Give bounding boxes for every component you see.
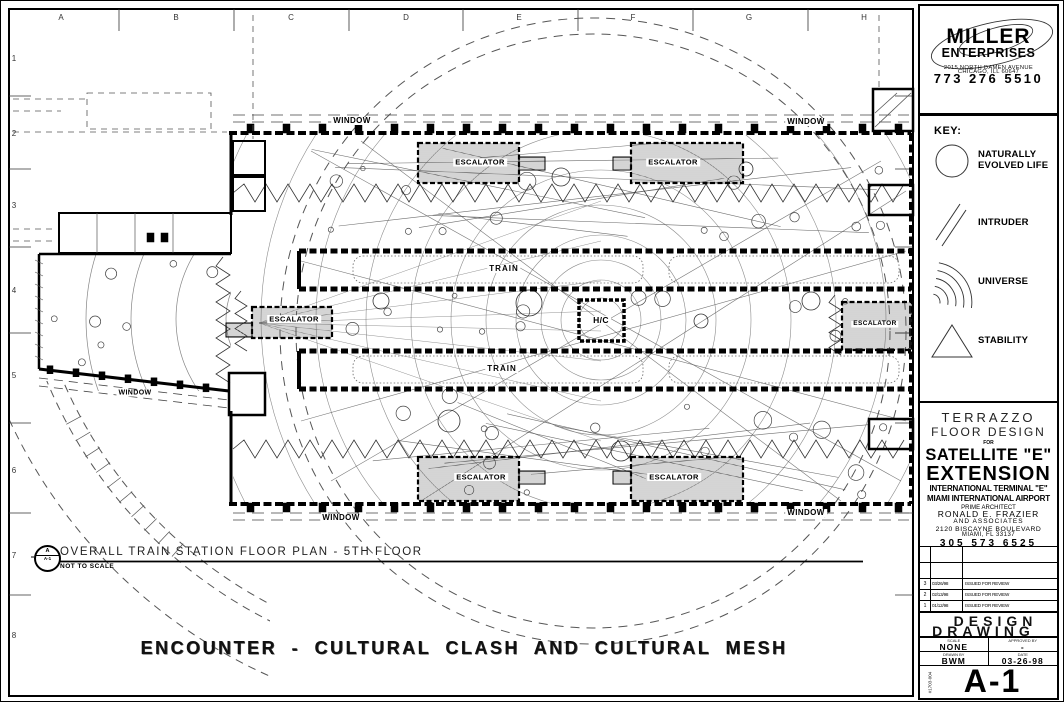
drawing-sheet: ABCDEFGH12345678 WINDOW WINDOW WINDOW WI…	[0, 0, 1064, 702]
escalator-label-east: ESCALATOR	[851, 321, 898, 328]
revision-date: 03/26/98	[931, 579, 963, 589]
revision-number: 3	[920, 579, 931, 589]
project-subtitle-line2: MIAMI INTERNATIONAL AIRPORT	[920, 494, 1057, 503]
hc-label: H/C	[591, 316, 611, 325]
company-phone: 773 276 5510	[920, 71, 1057, 86]
train-label-south: TRAIN	[485, 365, 518, 373]
key-title: KEY:	[934, 125, 961, 137]
grid-row-6: 6	[12, 467, 16, 475]
revision-description: ISSUED FOR REVIEW	[963, 579, 1057, 589]
key-item-label: INTRUDER	[978, 218, 1029, 229]
project-title-block: TERRAZZO FLOOR DESIGN FOR SATELLITE "E" …	[920, 401, 1057, 546]
diagonal-lines-icon	[926, 198, 978, 248]
triangle-icon	[926, 321, 978, 361]
project-title-line2: EXTENSION	[920, 464, 1057, 484]
architect-name: RONALD E. FRAZIER	[920, 511, 1057, 518]
drawing-type-line2: DRAWING	[920, 628, 1047, 636]
revision-date: 02/13/98	[931, 590, 963, 600]
bubble-detail-letter: A	[36, 547, 59, 556]
key-item-universe: UNIVERSE	[926, 256, 1055, 308]
floor-plan-drawing	[1, 1, 917, 702]
scale-value: NONE	[920, 643, 988, 652]
radiating-arcs-icon	[926, 256, 978, 308]
key-item-intruder: INTRUDER	[926, 198, 1055, 248]
sheet-number: A-1	[928, 665, 1057, 697]
train-label-north: TRAIN	[487, 265, 520, 273]
drawing-info-grid: SCALE NONE APPROVED BY - DRAWN BY BWM DA…	[920, 636, 1057, 664]
window-label-wing: WINDOW	[116, 390, 153, 397]
grid-column-E: E	[516, 14, 521, 22]
grid-row-8: 8	[12, 632, 16, 640]
circle-icon	[926, 141, 978, 181]
key-item-label: STABILITY	[978, 336, 1028, 347]
revision-number: 2	[920, 590, 931, 600]
revision-number: 1	[920, 601, 931, 611]
approved-value: -	[989, 643, 1058, 652]
concept-title: ENCOUNTER - CULTURAL CLASH AND CULTURAL …	[141, 638, 788, 659]
revision-row: 2 02/13/98 ISSUED FOR REVIEW	[920, 590, 1057, 601]
grid-column-H: H	[861, 14, 867, 22]
key-item-label: UNIVERSE	[978, 277, 1028, 288]
grid-column-D: D	[403, 14, 409, 22]
legend-key-block: KEY: NATURALLY EVOLVED LIFE INTRUDER	[920, 116, 1057, 401]
revision-description: ISSUED FOR REVIEW	[963, 590, 1057, 600]
window-label-top-left: WINDOW	[331, 117, 373, 125]
grid-row-2: 2	[12, 130, 16, 138]
plan-caption-title: OVERALL TRAIN STATION FLOOR PLAN - 5TH F…	[60, 546, 423, 558]
escalator-label-top-left: ESCALATOR	[453, 158, 507, 166]
escalator-label-bottom-right: ESCALATOR	[647, 473, 701, 481]
grid-row-7: 7	[12, 552, 16, 560]
project-subtitle-line1: INTERNATIONAL TERMINAL "E"	[920, 484, 1057, 493]
revision-row-empty	[920, 547, 1057, 563]
grid-row-1: 1	[12, 55, 16, 63]
window-label-top-right: WINDOW	[785, 118, 827, 126]
key-item-stability: STABILITY	[926, 321, 1055, 361]
architect-phone: 305 573 6525	[920, 538, 1057, 546]
company-name-line2: ENTERPRISES	[920, 47, 1057, 60]
title-block-panel: MILLER ENTERPRISES 2015 NORTH DAMEN AVEN…	[918, 4, 1059, 700]
revision-row-empty	[920, 563, 1057, 579]
grid-column-F: F	[631, 14, 636, 22]
escalator-label-west: ESCALATOR	[267, 315, 321, 323]
scale-cell: SCALE NONE	[920, 638, 989, 652]
grid-row-3: 3	[12, 202, 16, 210]
escalator-label-top-right: ESCALATOR	[646, 158, 700, 166]
drawing-type-block: DESIGN DRAWING	[920, 611, 1057, 636]
key-item-label: NATURALLY EVOLVED LIFE	[978, 150, 1055, 172]
window-label-bottom-left: WINDOW	[320, 514, 362, 522]
grid-column-G: G	[746, 14, 752, 22]
key-item-naturally-evolved-life: NATURALLY EVOLVED LIFE	[926, 141, 1055, 181]
project-subject-line1: TERRAZZO	[920, 410, 1057, 425]
grid-row-4: 4	[12, 287, 16, 295]
project-subject-line2: FLOOR DESIGN	[920, 425, 1057, 439]
approved-cell: APPROVED BY -	[989, 638, 1058, 652]
revision-row: 3 03/26/98 ISSUED FOR REVIEW	[920, 579, 1057, 590]
revision-table: 3 03/26/98 ISSUED FOR REVIEW 2 02/13/98 …	[920, 546, 1057, 611]
sheet-number-block: #1703-004 A-1	[920, 664, 1057, 699]
project-title-line1: SATELLITE "E"	[920, 447, 1057, 464]
company-name-line1: MILLER	[920, 28, 1057, 47]
job-number: #1703-004	[927, 672, 932, 694]
company-logo-block: MILLER ENTERPRISES 2015 NORTH DAMEN AVEN…	[920, 6, 1057, 116]
revision-date: 01/12/98	[931, 601, 963, 611]
grid-column-B: B	[173, 14, 178, 22]
grid-row-5: 5	[12, 372, 16, 380]
revision-description: ISSUED FOR REVIEW	[963, 601, 1057, 611]
detail-reference-bubble: A A-1	[34, 545, 61, 572]
grid-column-C: C	[288, 14, 294, 22]
grid-column-A: A	[58, 14, 63, 22]
bubble-sheet-ref: A-1	[36, 556, 59, 562]
window-label-bottom-right: WINDOW	[785, 509, 827, 517]
escalator-label-bottom-left: ESCALATOR	[454, 473, 508, 481]
plan-caption-scale-note: NOT TO SCALE	[60, 563, 114, 570]
